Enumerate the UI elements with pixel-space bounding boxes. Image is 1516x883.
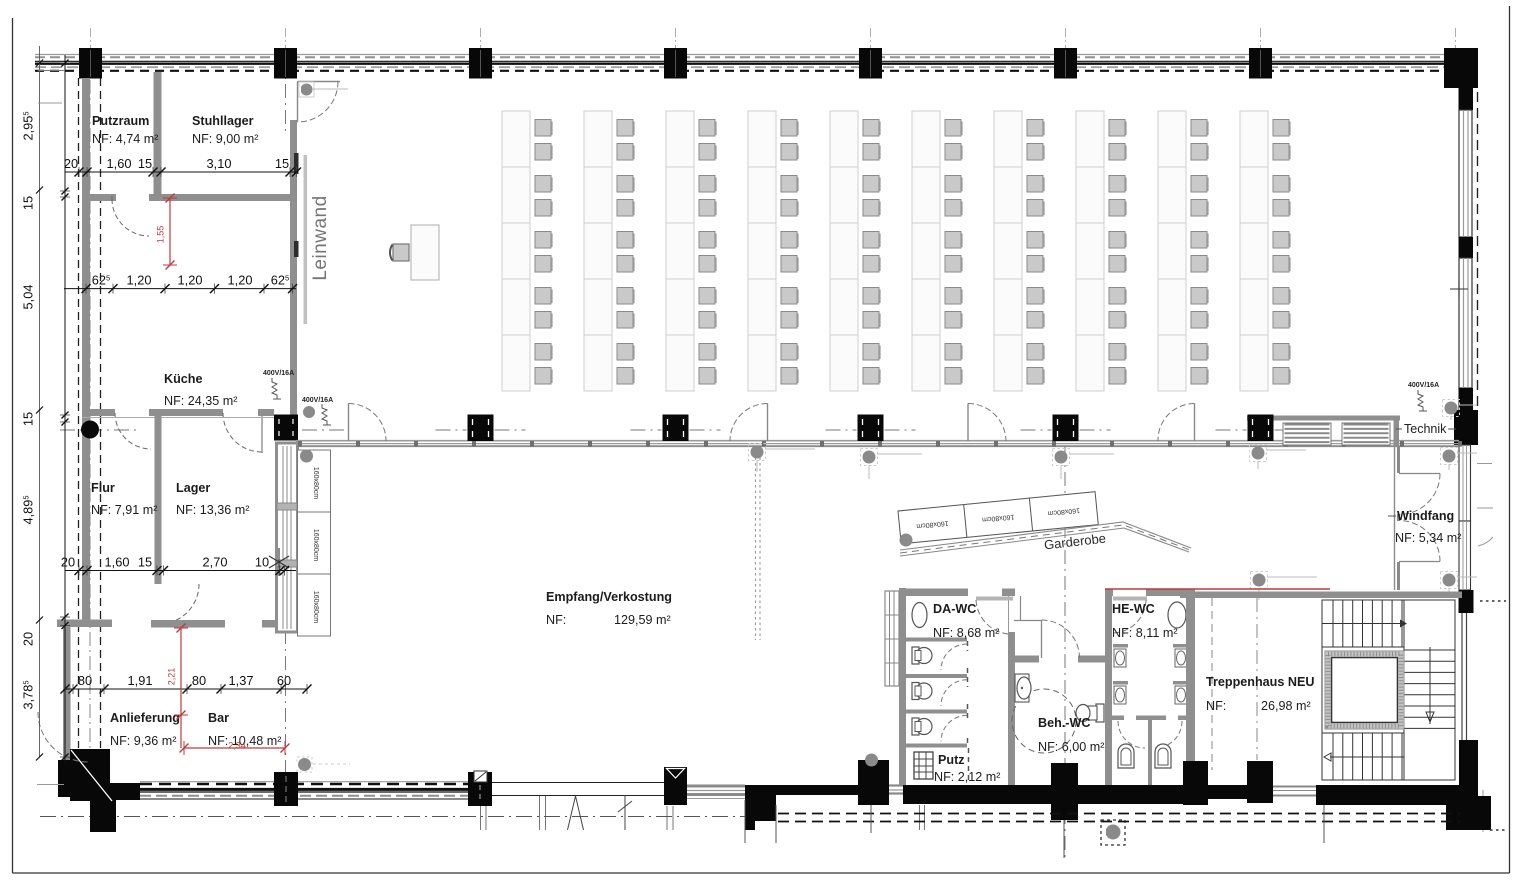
svg-text:400V/16A: 400V/16A: [302, 397, 333, 404]
svg-text:1,60: 1,60: [105, 555, 130, 570]
svg-text:160x80cm: 160x80cm: [312, 529, 319, 561]
svg-text:NF: 8,68 m²: NF: 8,68 m²: [933, 626, 999, 640]
svg-text:1,37: 1,37: [229, 673, 254, 688]
svg-text:Treppenhaus NEU: Treppenhaus NEU: [1206, 675, 1314, 689]
svg-text:3,785: 3,785: [21, 680, 36, 709]
svg-text:1,20: 1,20: [127, 273, 152, 288]
svg-text:160x80cm: 160x80cm: [312, 467, 319, 499]
svg-text:15: 15: [275, 156, 289, 171]
svg-text:15: 15: [21, 412, 36, 426]
svg-text:60: 60: [277, 673, 291, 688]
svg-text:NF: 4,74 m²: NF: 4,74 m²: [92, 132, 158, 146]
svg-text:Putzraum: Putzraum: [92, 114, 149, 128]
svg-text:NF: 9,00 m²: NF: 9,00 m²: [192, 132, 258, 146]
svg-text:400V/16A: 400V/16A: [1408, 382, 1439, 389]
svg-text:Bar: Bar: [208, 711, 229, 725]
svg-text:4,895: 4,895: [21, 495, 36, 524]
svg-text:26,98 m²: 26,98 m²: [1261, 699, 1311, 713]
svg-text:NF: 6,00 m²: NF: 6,00 m²: [1038, 740, 1104, 754]
svg-text:HE-WC: HE-WC: [1112, 602, 1155, 616]
svg-text:NF: 5,34 m²: NF: 5,34 m²: [1395, 531, 1461, 545]
svg-text:1,55: 1,55: [156, 226, 166, 244]
svg-text:Stuhllager: Stuhllager: [192, 114, 254, 128]
svg-text:160x80cm: 160x80cm: [312, 591, 319, 623]
svg-text:3,10: 3,10: [207, 156, 232, 171]
svg-text:NF:: NF:: [546, 613, 566, 627]
svg-text:Technik: Technik: [1404, 422, 1447, 436]
svg-text:5,04: 5,04: [21, 285, 36, 310]
svg-text:400V/16A: 400V/16A: [263, 370, 294, 377]
svg-text:NF: 13,36 m²: NF: 13,36 m²: [176, 503, 249, 517]
svg-text:2,70: 2,70: [203, 555, 228, 570]
svg-text:NF:: NF:: [1206, 699, 1226, 713]
svg-text:10: 10: [255, 555, 269, 570]
svg-text:20: 20: [64, 156, 78, 171]
svg-text:Küche: Küche: [164, 372, 203, 386]
svg-text:2,34: 2,34: [228, 741, 246, 751]
svg-text:NF: 7,91 m²: NF: 7,91 m²: [91, 503, 157, 517]
svg-text:DA-WC: DA-WC: [933, 602, 976, 616]
svg-text:1,20: 1,20: [228, 273, 253, 288]
svg-text:15: 15: [138, 555, 152, 570]
svg-text:15: 15: [21, 196, 36, 210]
svg-text:80: 80: [192, 673, 206, 688]
svg-text:Beh.-WC: Beh.-WC: [1038, 716, 1090, 730]
svg-text:Flur: Flur: [91, 481, 115, 495]
svg-text:Anlieferung: Anlieferung: [110, 711, 180, 725]
svg-text:Windfang: Windfang: [1397, 509, 1454, 523]
svg-text:20: 20: [61, 555, 75, 570]
svg-text:80: 80: [78, 673, 92, 688]
svg-text:NF: 8,11 m²: NF: 8,11 m²: [1112, 626, 1178, 640]
svg-text:NF: 24,35 m²: NF: 24,35 m²: [164, 394, 237, 408]
svg-text:Putz: Putz: [938, 753, 965, 767]
svg-text:1,91: 1,91: [128, 673, 153, 688]
svg-text:2,21: 2,21: [167, 668, 177, 686]
svg-text:20: 20: [21, 632, 36, 646]
svg-text:1,20: 1,20: [178, 273, 203, 288]
svg-text:Lager: Lager: [176, 481, 210, 495]
svg-text:Empfang/Verkostung: Empfang/Verkostung: [546, 590, 672, 604]
svg-text:15: 15: [138, 156, 152, 171]
svg-text:2,955: 2,955: [21, 111, 36, 140]
svg-text:NF: 2,12 m²: NF: 2,12 m²: [934, 770, 1000, 784]
svg-text:Leinwand: Leinwand: [310, 195, 331, 280]
svg-text:1,60: 1,60: [107, 156, 132, 171]
svg-text:129,59 m²: 129,59 m²: [614, 613, 671, 627]
svg-text:NF: 9,36 m²: NF: 9,36 m²: [110, 734, 176, 748]
